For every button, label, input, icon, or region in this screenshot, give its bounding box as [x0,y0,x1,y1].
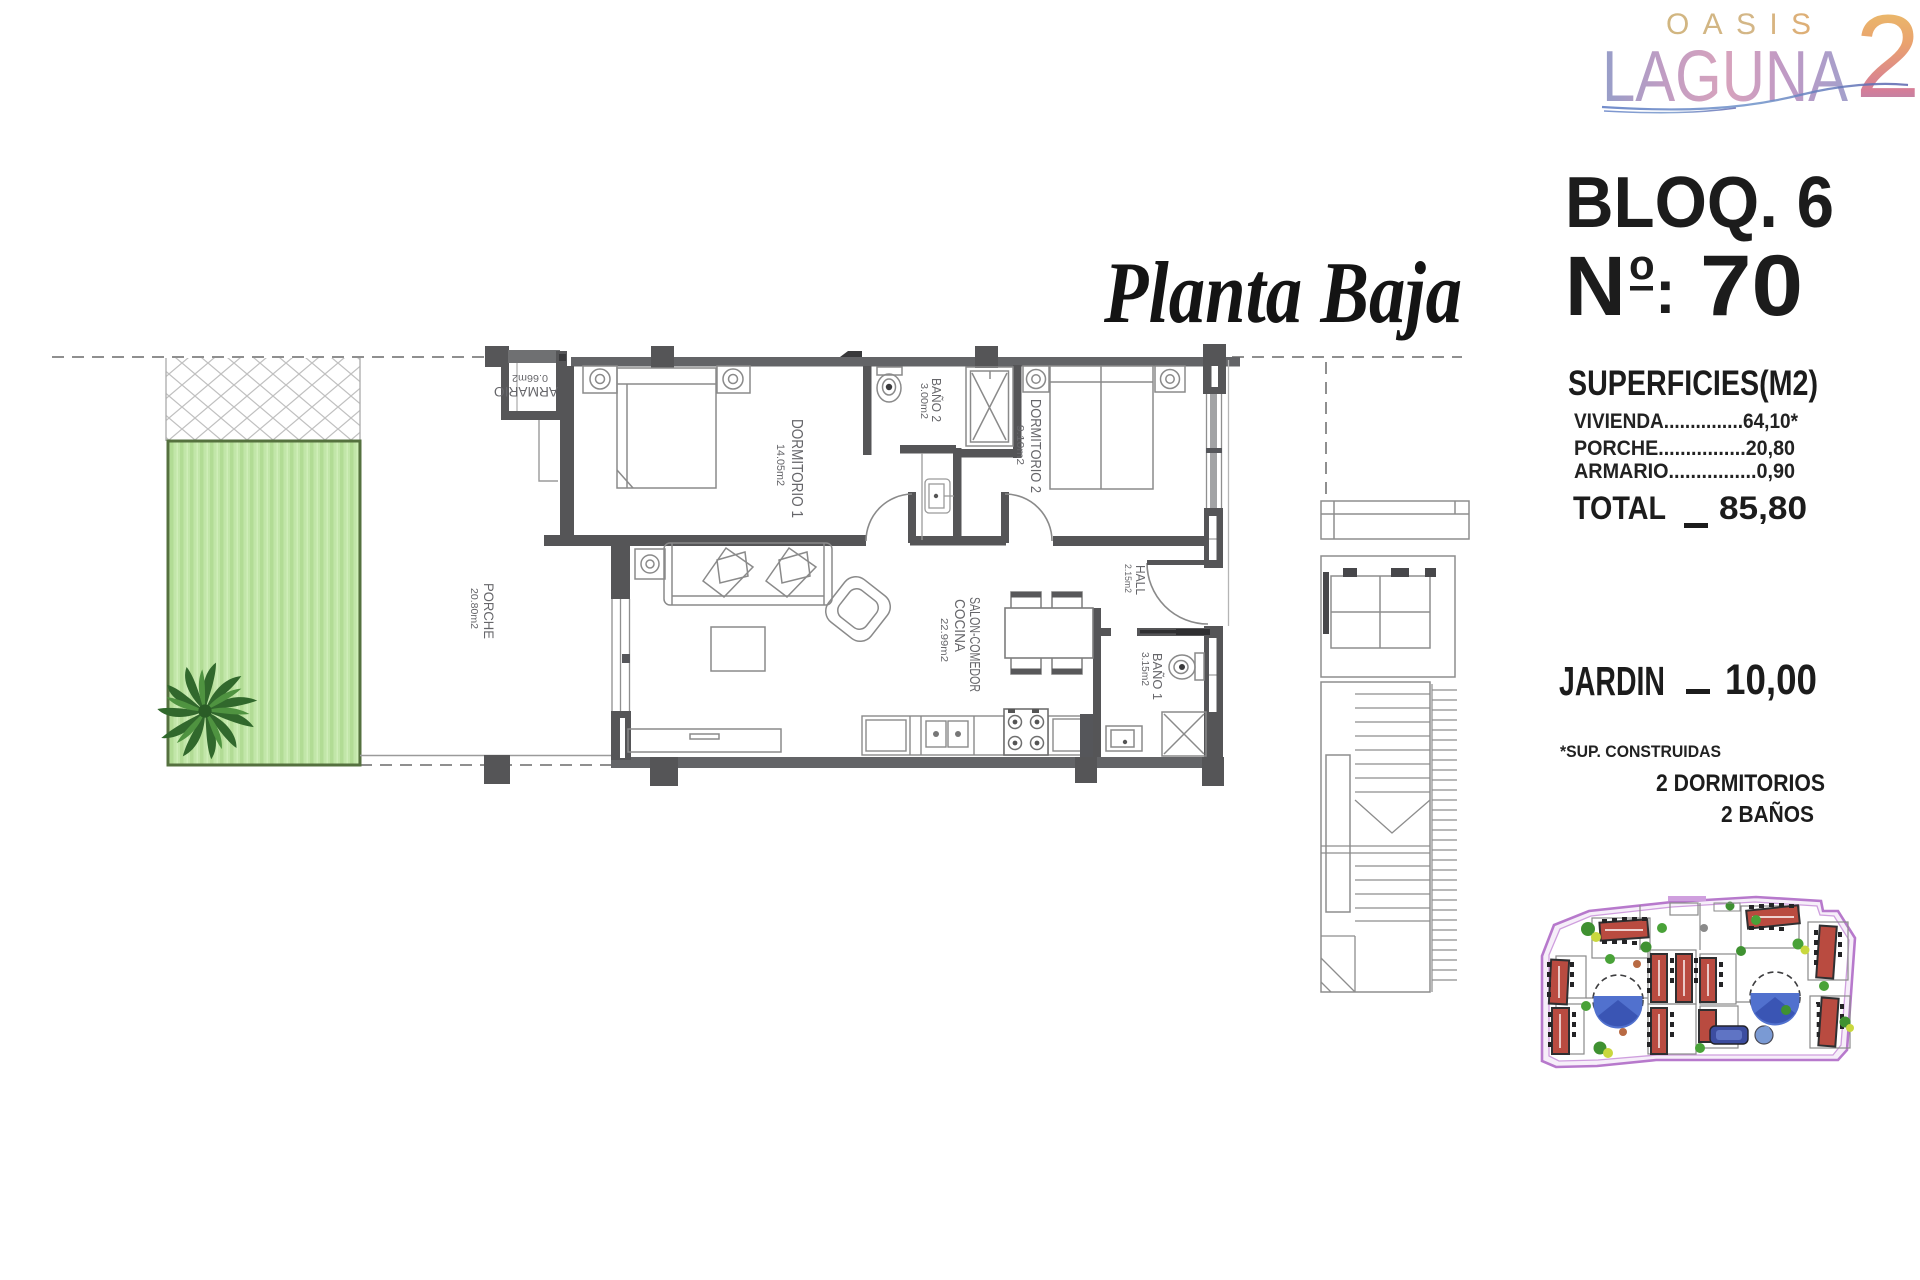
svg-text:DORMITORIO 1: DORMITORIO 1 [788,419,805,518]
svg-text::: : [1655,258,1676,327]
svg-text:9.10m2: 9.10m2 [1014,425,1026,465]
svg-text:0.66m2: 0.66m2 [512,372,548,383]
svg-text:22.99m2: 22.99m2 [938,618,950,662]
svg-text:LAGUNA: LAGUNA [1602,37,1848,117]
svg-text:DORMITORIO 2: DORMITORIO 2 [1027,399,1044,493]
svg-text:PORCHE................20,80: PORCHE................20,80 [1574,437,1795,460]
svg-text:ARMARIO................0,90: ARMARIO................0,90 [1574,460,1795,483]
svg-text:14.05m2: 14.05m2 [774,444,786,486]
svg-text:2.15m2: 2.15m2 [1122,564,1133,593]
svg-text:3.00m2: 3.00m2 [918,383,929,419]
svg-text:2 BAÑOS: 2 BAÑOS [1721,800,1814,827]
svg-text:VIVIENDA...............64,10*: VIVIENDA...............64,10* [1574,410,1799,433]
svg-text:JARDIN: JARDIN [1559,658,1665,704]
svg-text:TOTAL: TOTAL [1573,490,1666,526]
svg-text:85,80: 85,80 [1719,490,1807,526]
svg-text:10,00: 10,00 [1725,656,1817,704]
svg-text:SUPERFICIES(M2): SUPERFICIES(M2) [1568,364,1818,403]
svg-text:N: N [1565,239,1626,333]
svg-text:2: 2 [1855,0,1920,123]
svg-text:COCINA: COCINA [951,599,968,652]
svg-text:Planta Baja: Planta Baja [1103,245,1462,342]
svg-text:2 DORMITORIOS: 2 DORMITORIOS [1656,770,1825,797]
svg-text:*SUP. CONSTRUIDAS: *SUP. CONSTRUIDAS [1560,742,1721,761]
svg-text:3.15m2: 3.15m2 [1139,652,1150,686]
svg-text:BAÑO 1: BAÑO 1 [1150,653,1165,700]
svg-text:ARMARIO: ARMARIO [494,384,558,400]
svg-text:BLOQ. 6: BLOQ. 6 [1565,163,1834,243]
svg-text:o: o [1629,241,1655,288]
svg-text:70: 70 [1700,238,1803,334]
svg-text:20.80m2: 20.80m2 [468,588,480,629]
svg-text:BAÑO 2: BAÑO 2 [929,378,944,422]
svg-text:PORCHE: PORCHE [481,583,497,639]
svg-text:HALL: HALL [1133,565,1148,595]
